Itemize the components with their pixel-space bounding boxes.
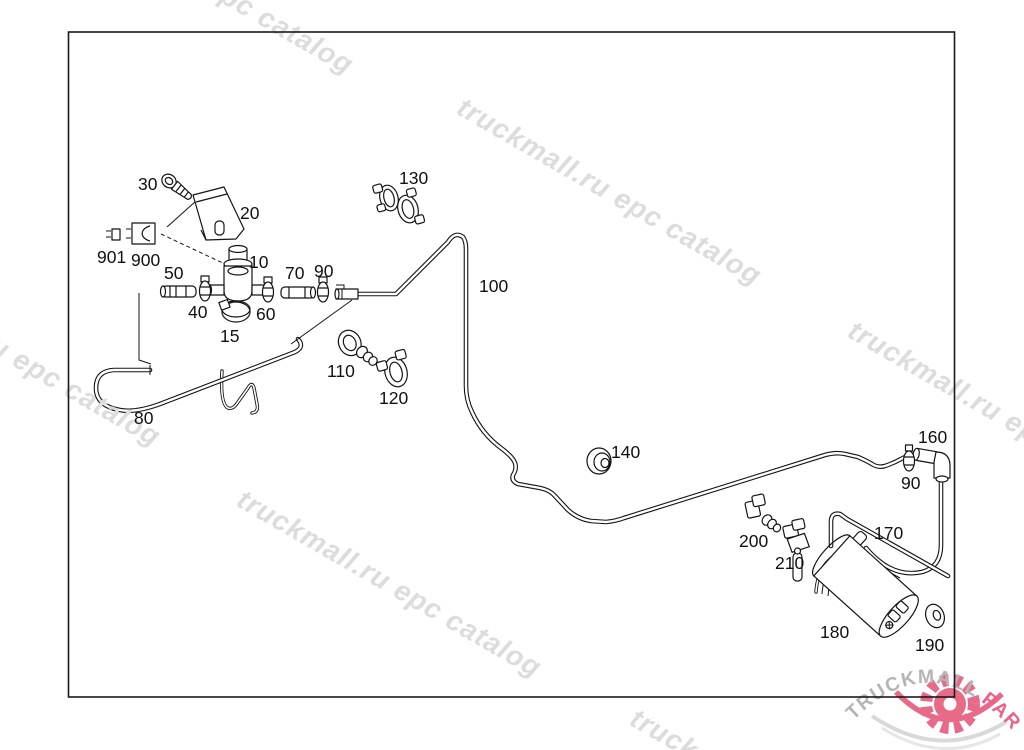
epc-parts-diagram-page: truckmall.ru epc catalogtruckmall.ru epc… xyxy=(0,0,1024,750)
part-label-15: 15 xyxy=(220,326,239,346)
part-label-210: 210 xyxy=(775,553,804,573)
part-60-clamp xyxy=(263,277,274,302)
part-label-140: 140 xyxy=(611,442,640,462)
part-label-30: 30 xyxy=(138,174,158,194)
part-120-clip xyxy=(374,349,413,391)
part-901-fitting xyxy=(106,229,120,240)
part-label-90-right: 90 xyxy=(901,473,921,493)
part-90-clamp-right xyxy=(904,445,915,471)
fuel-line-100 xyxy=(340,235,907,522)
part-15-clamp xyxy=(219,300,250,322)
part-label-130: 130 xyxy=(399,168,428,188)
part-200-valve xyxy=(745,494,782,534)
part-label-901: 901 xyxy=(97,247,126,267)
watermark-text: truckmall.ru epc catalog xyxy=(843,314,1024,514)
part-label-100: 100 xyxy=(479,276,508,296)
watermark-text: truckmall.ru epc catalog xyxy=(44,0,359,80)
part-30-bolt xyxy=(159,171,195,203)
part-70-pipe xyxy=(281,287,316,298)
part-label-50: 50 xyxy=(164,263,184,283)
part-label-20: 20 xyxy=(240,203,260,223)
part-20-bracket xyxy=(193,187,244,240)
watermark-text: truckmall.ru epc catalog xyxy=(452,91,767,291)
part-label-160: 160 xyxy=(918,427,947,447)
part-label-190: 190 xyxy=(915,635,944,655)
part-label-900: 900 xyxy=(131,250,160,270)
part-label-10: 10 xyxy=(249,252,269,272)
part-100-pipe-end xyxy=(335,285,358,299)
part-label-40: 40 xyxy=(188,302,208,322)
part-label-120: 120 xyxy=(379,388,408,408)
part-label-60: 60 xyxy=(256,304,276,324)
watermark-layer: truckmall.ru epc catalogtruckmall.ru epc… xyxy=(0,0,1024,750)
part-label-90-left: 90 xyxy=(314,261,334,281)
part-label-170: 170 xyxy=(874,523,903,543)
part-label-180: 180 xyxy=(820,622,849,642)
watermark-text: truckmall.ru epc catalog xyxy=(232,483,547,683)
part-140-grommet xyxy=(587,448,611,474)
parts-diagram-svg: truckmall.ru epc catalogtruckmall.ru epc… xyxy=(0,0,1024,750)
part-label-80: 80 xyxy=(134,408,154,428)
part-label-200: 200 xyxy=(739,531,768,551)
part-50-pipe xyxy=(161,286,197,297)
part-900-sensor xyxy=(126,223,155,244)
part-190-washer xyxy=(922,602,947,631)
part-label-70: 70 xyxy=(285,263,305,283)
part-label-110: 110 xyxy=(327,361,355,381)
part-40-clamp xyxy=(200,276,211,301)
